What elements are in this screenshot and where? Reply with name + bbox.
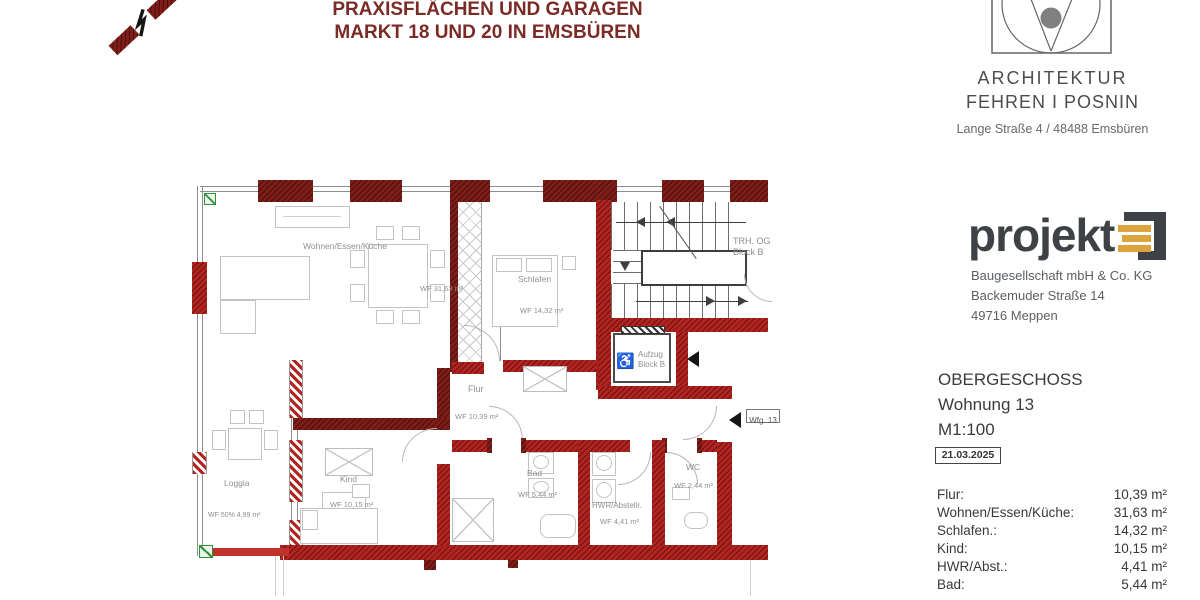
- company-line: 49716 Meppen: [971, 308, 1058, 323]
- elevator-label: Block B: [638, 360, 665, 369]
- stairwell-label: Block B: [733, 247, 764, 257]
- room-label: Loggia: [224, 478, 250, 488]
- wheelchair-icon: ♿: [616, 352, 635, 370]
- room-name: HWR/Abst.:: [937, 559, 1008, 574]
- wall-stub: [424, 560, 436, 570]
- furniture-chair: [376, 226, 394, 240]
- wall-fragment: [109, 0, 178, 55]
- entrance-arrow-icon: [729, 412, 741, 428]
- wall: [717, 442, 732, 546]
- furniture-sideboard: [275, 206, 350, 228]
- furniture-line: [283, 216, 341, 217]
- wall-insulated: [289, 360, 303, 418]
- company-logo-icon: [1118, 212, 1166, 260]
- date-stamp: 21.03.2025: [935, 447, 1001, 464]
- table-row: HWR/Abst.: 4,41 m²: [937, 559, 1167, 574]
- room-area: WF 4,41 m²: [600, 517, 639, 526]
- furniture-chair: [350, 284, 365, 302]
- wall-pier: [543, 180, 617, 202]
- room-name: Wohnen/Essen/Küche:: [937, 505, 1074, 520]
- furniture-dining-table: [368, 244, 428, 308]
- room-area: WF 31,63 m²: [420, 284, 463, 293]
- furniture-chair: [230, 410, 245, 424]
- architect-address: Lange Straße 4 / 48488 Emsbüren: [930, 122, 1175, 136]
- room-name: Schlafen.:: [937, 523, 997, 538]
- table-row: Kind: 10,15 m²: [937, 541, 1167, 556]
- wall-pier: [192, 262, 207, 314]
- door-jamb: [697, 438, 702, 453]
- door-jamb: [521, 438, 526, 453]
- furniture-chair: [376, 310, 394, 324]
- room-label: Bad: [527, 468, 542, 478]
- wall-pier: [192, 452, 207, 474]
- furniture-chair: [430, 250, 445, 268]
- faint-line: [283, 556, 284, 596]
- scale-label: M1:100: [938, 420, 995, 440]
- furniture-chair: [212, 430, 226, 450]
- room-name: Flur:: [937, 487, 964, 502]
- room-area: WF 5,44 m²: [518, 490, 557, 499]
- window-line: [197, 186, 198, 556]
- furniture-chair: [350, 250, 365, 268]
- furniture-pillow: [526, 258, 552, 272]
- table-row: Bad: 5,44 m²: [937, 577, 1167, 592]
- wall-pier: [450, 180, 490, 202]
- wall-insulated: [289, 440, 303, 502]
- bath-shower: [452, 498, 494, 542]
- room-value: 5,44 m²: [1121, 577, 1167, 592]
- room-value: 4,41 m²: [1121, 559, 1167, 574]
- sheet-title: PRAXISFLÄCHEN UND GARAGEN MARKT 18 UND 2…: [320, 0, 655, 44]
- shaft-box: [523, 366, 567, 392]
- entrance-tag-text: Wfg. 13: [749, 416, 777, 425]
- room-value: 31,63 m²: [1114, 505, 1167, 520]
- room-area: WF 50% 4,99 m²: [208, 512, 261, 519]
- stair-arrow-icon: [620, 262, 630, 271]
- wall: [293, 418, 450, 430]
- unit-title: Wohnung 13: [938, 395, 1034, 415]
- window-line: [291, 502, 292, 520]
- drawing-sheet: PRAXISFLÄCHEN UND GARAGEN MARKT 18 UND 2…: [0, 0, 1200, 600]
- room-label: WC: [686, 462, 700, 472]
- table-row: Flur: 10,39 m²: [937, 487, 1167, 502]
- window-line: [291, 418, 292, 440]
- furniture-sofa: [220, 300, 256, 334]
- symbol-green-square: [204, 193, 216, 205]
- wall: [524, 440, 578, 452]
- wall-pier: [730, 180, 768, 202]
- entrance-arrow-icon: [687, 351, 699, 367]
- wall: [452, 440, 490, 452]
- furniture-table: [228, 428, 262, 460]
- door-arc: [402, 428, 437, 462]
- furniture-chair: [402, 310, 420, 324]
- sheet-title-line1: PRAXISFLÄCHEN UND GARAGEN: [320, 0, 655, 21]
- window-line: [297, 502, 298, 520]
- wall: [652, 440, 665, 546]
- room-label: Flur: [468, 384, 484, 394]
- furniture-wardrobe: [325, 448, 373, 476]
- room-label: Kind: [340, 474, 357, 484]
- furniture-chair: [264, 430, 278, 450]
- furniture-pillow: [496, 258, 522, 272]
- furniture-chair: [249, 410, 264, 424]
- wall-band: [213, 548, 289, 556]
- stairwell-label: TRH. OG: [733, 236, 771, 246]
- room-name: Bad:: [937, 577, 965, 592]
- elevator-door-hatch: [621, 326, 665, 334]
- room-label: HWR/Abstellr.: [592, 501, 642, 510]
- furniture-chair: [402, 226, 420, 240]
- room-area: WF 10,39 m²: [455, 412, 498, 421]
- floor-title: OBERGESCHOSS: [938, 370, 1083, 390]
- wall-exterior-bottom: [280, 545, 768, 560]
- faint-line: [750, 560, 751, 596]
- entrance-tag: Wfg. 13: [746, 409, 780, 423]
- room-label: Schlafen: [518, 274, 551, 284]
- wall-elevator-bottom: [598, 386, 732, 399]
- elevator-label: Aufzug: [638, 350, 663, 359]
- wc-toilet: [684, 512, 708, 529]
- furniture-sofa: [220, 256, 310, 300]
- wall-pier: [258, 180, 313, 202]
- table-row: Schlafen.: 14,32 m²: [937, 523, 1167, 538]
- company-line: Backemuder Straße 14: [971, 288, 1105, 303]
- bath-sink-bowl: [533, 455, 549, 469]
- faint-line: [275, 556, 276, 596]
- door-arc: [683, 406, 717, 440]
- symbol-green-square: [199, 545, 213, 558]
- table-row: Wohnen/Essen/Küche: 31,63 m²: [937, 505, 1167, 520]
- architect-logo: [991, 0, 1112, 54]
- architect-name: ARCHITEKTUR: [930, 68, 1175, 89]
- door-leaf: [500, 325, 501, 361]
- wall: [717, 386, 732, 399]
- furniture-nightstand: [562, 256, 576, 270]
- wall-elevator-left: [598, 332, 611, 386]
- stair-direction-line: [636, 301, 748, 302]
- room-value: 14,32 m²: [1114, 523, 1167, 538]
- sheet-title-line2: MARKT 18 UND 20 IN EMSBÜREN: [320, 21, 655, 44]
- bath-tub: [540, 514, 576, 538]
- door-arc: [618, 452, 651, 485]
- stair-arrow-icon: [636, 217, 645, 227]
- wall-pier: [662, 180, 704, 202]
- wall-pier: [350, 180, 402, 202]
- window-line: [202, 186, 203, 556]
- wall-stub: [452, 362, 484, 374]
- wall: [437, 464, 450, 546]
- company-logo-text: projekt: [968, 208, 1114, 262]
- architect-name: FEHREN I POSNIN: [930, 92, 1175, 113]
- wall-stub: [508, 560, 518, 568]
- door-arc: [744, 274, 772, 302]
- room-name: Kind:: [937, 541, 968, 556]
- stair-arrow-icon: [706, 296, 715, 306]
- room-value: 10,39 m²: [1114, 487, 1167, 502]
- company-line: Baugesellschaft mbH & Co. KG: [971, 268, 1152, 283]
- room-value: 10,15 m²: [1114, 541, 1167, 556]
- wall: [700, 440, 717, 452]
- furniture-pillow: [302, 510, 318, 530]
- room-label: Wohnen/Essen/Küche: [303, 241, 387, 251]
- stair-arrow-icon: [738, 296, 747, 306]
- furniture-chair: [352, 484, 370, 498]
- room-area: WF 14,32 m²: [520, 306, 563, 315]
- door-arc: [464, 325, 500, 361]
- hwr-washer-drum: [596, 455, 612, 471]
- door-jamb: [487, 438, 492, 453]
- room-area: WF 2,44 m²: [674, 481, 713, 490]
- wall: [578, 440, 590, 546]
- room-area: WF 10,15 m²: [330, 500, 373, 509]
- hwr-dryer-drum: [596, 482, 612, 498]
